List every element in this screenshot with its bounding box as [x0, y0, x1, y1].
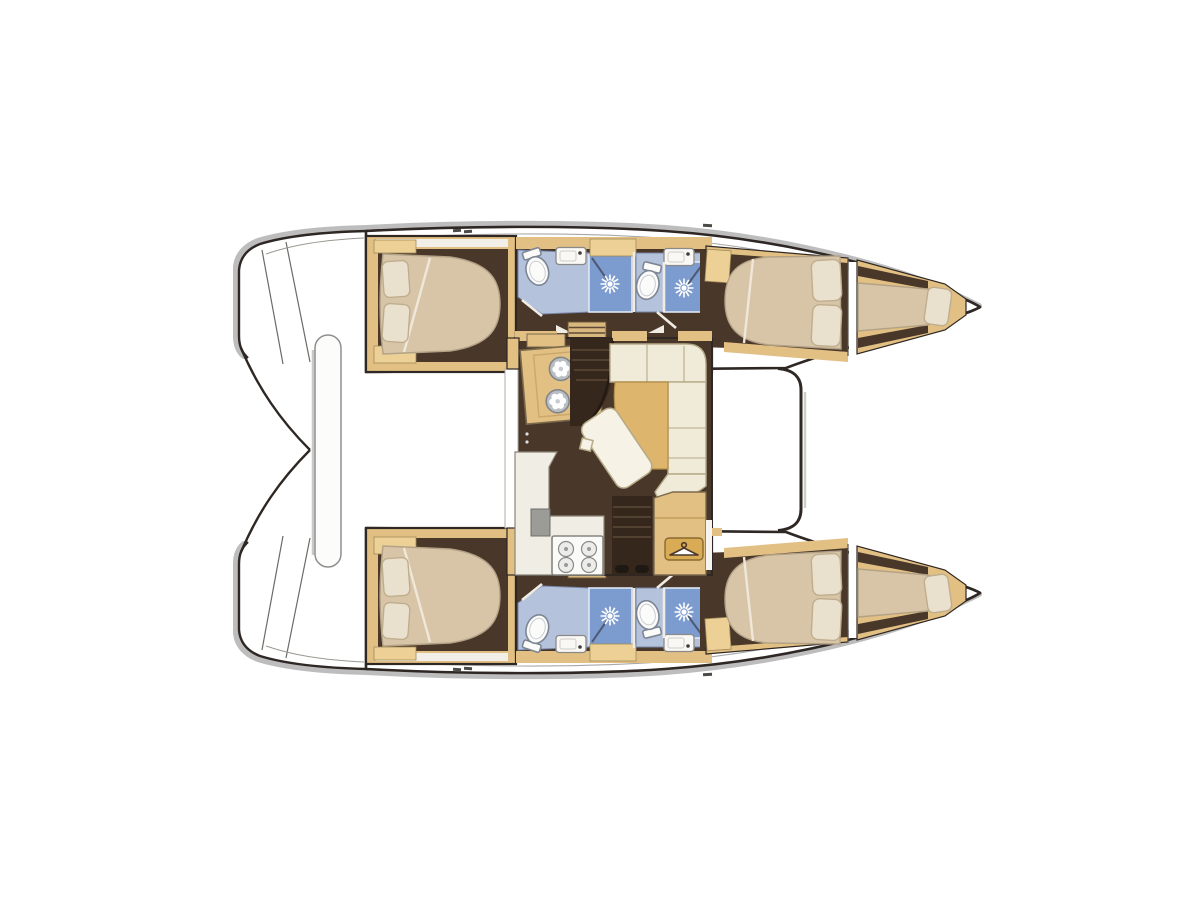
floor-plan-svg: Catamaran yacht interior layout — top-vi…	[0, 0, 1200, 900]
saloon	[505, 331, 722, 575]
coachroof-edge	[778, 369, 801, 531]
steps-to-starboard-hull	[612, 496, 652, 575]
catamaran-layout-diagram: Catamaran yacht interior layout — top-vi…	[0, 0, 1200, 900]
aft-beam-table	[313, 335, 341, 567]
hanging-locker	[654, 492, 706, 575]
